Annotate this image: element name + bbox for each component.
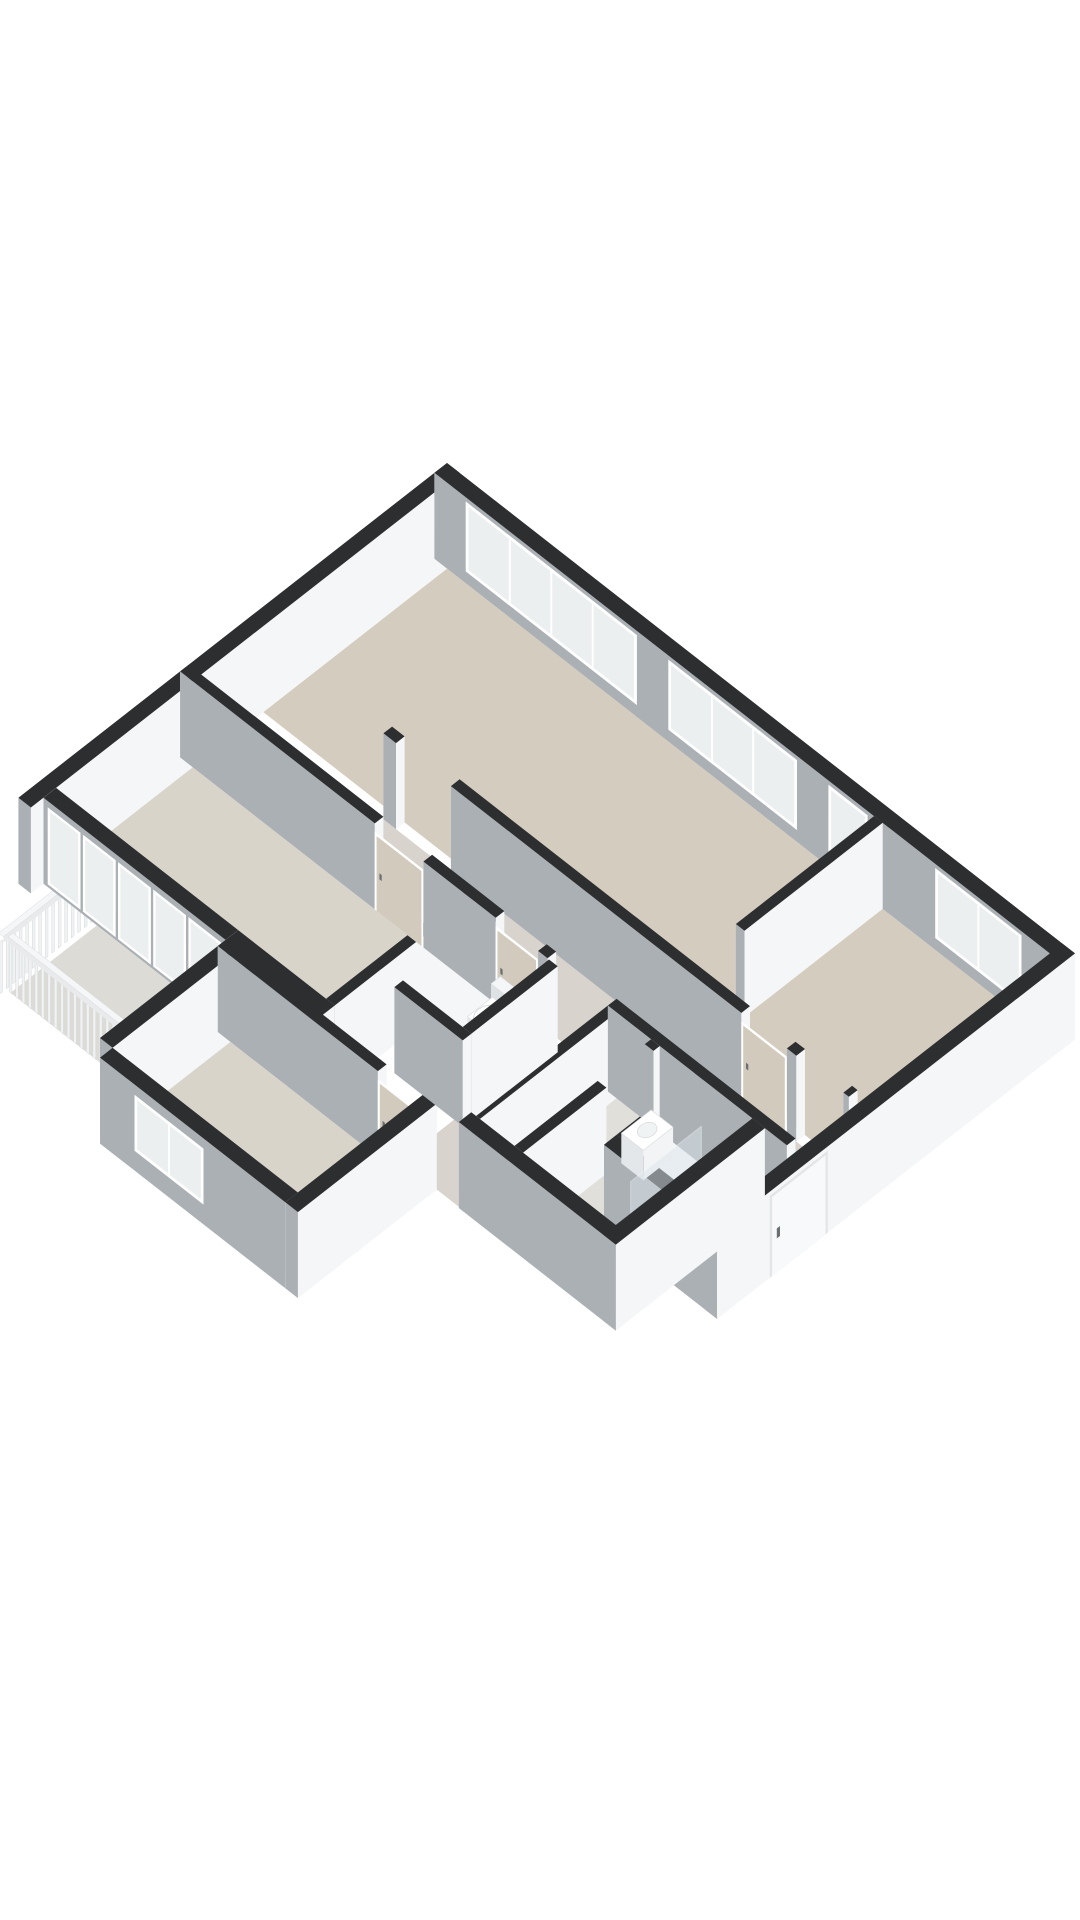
window-mullion [592, 603, 594, 668]
floorplan-canvas [0, 0, 1080, 1920]
window-mullion [509, 539, 511, 603]
wall-end [285, 1202, 298, 1298]
window-mullion [550, 571, 552, 636]
railing-slat [74, 990, 77, 1044]
railing-slat [80, 995, 83, 1049]
railing-slat [48, 970, 51, 1024]
railing-slat [29, 955, 32, 1009]
railing-slat [16, 945, 19, 999]
railing-slat [87, 1000, 90, 1054]
railing-slat [54, 975, 57, 1029]
wall-face [383, 733, 396, 829]
window-mullion [977, 905, 979, 969]
wall-end [463, 1034, 472, 1127]
window-mullion [168, 1124, 170, 1175]
railing-slat [58, 894, 61, 948]
railing-slat [0, 940, 3, 994]
wall-end [796, 1049, 805, 1142]
window-mullion [711, 697, 713, 761]
railing-slat [45, 904, 48, 958]
floorplan-3d-view [0, 0, 1080, 1920]
wall-end [603, 1235, 616, 1331]
railing-slat [22, 950, 25, 1004]
wall-face [787, 1048, 796, 1141]
railing-slat [9, 940, 12, 994]
railing-slat [35, 960, 38, 1014]
railing-slat [41, 965, 44, 1019]
window-mullion [752, 729, 754, 794]
wall-end [18, 798, 31, 894]
wall-end [396, 736, 405, 829]
railing-slat [61, 980, 64, 1034]
railing-slat [52, 899, 55, 953]
railing-slat [67, 985, 70, 1039]
railing-slat [93, 1005, 96, 1059]
